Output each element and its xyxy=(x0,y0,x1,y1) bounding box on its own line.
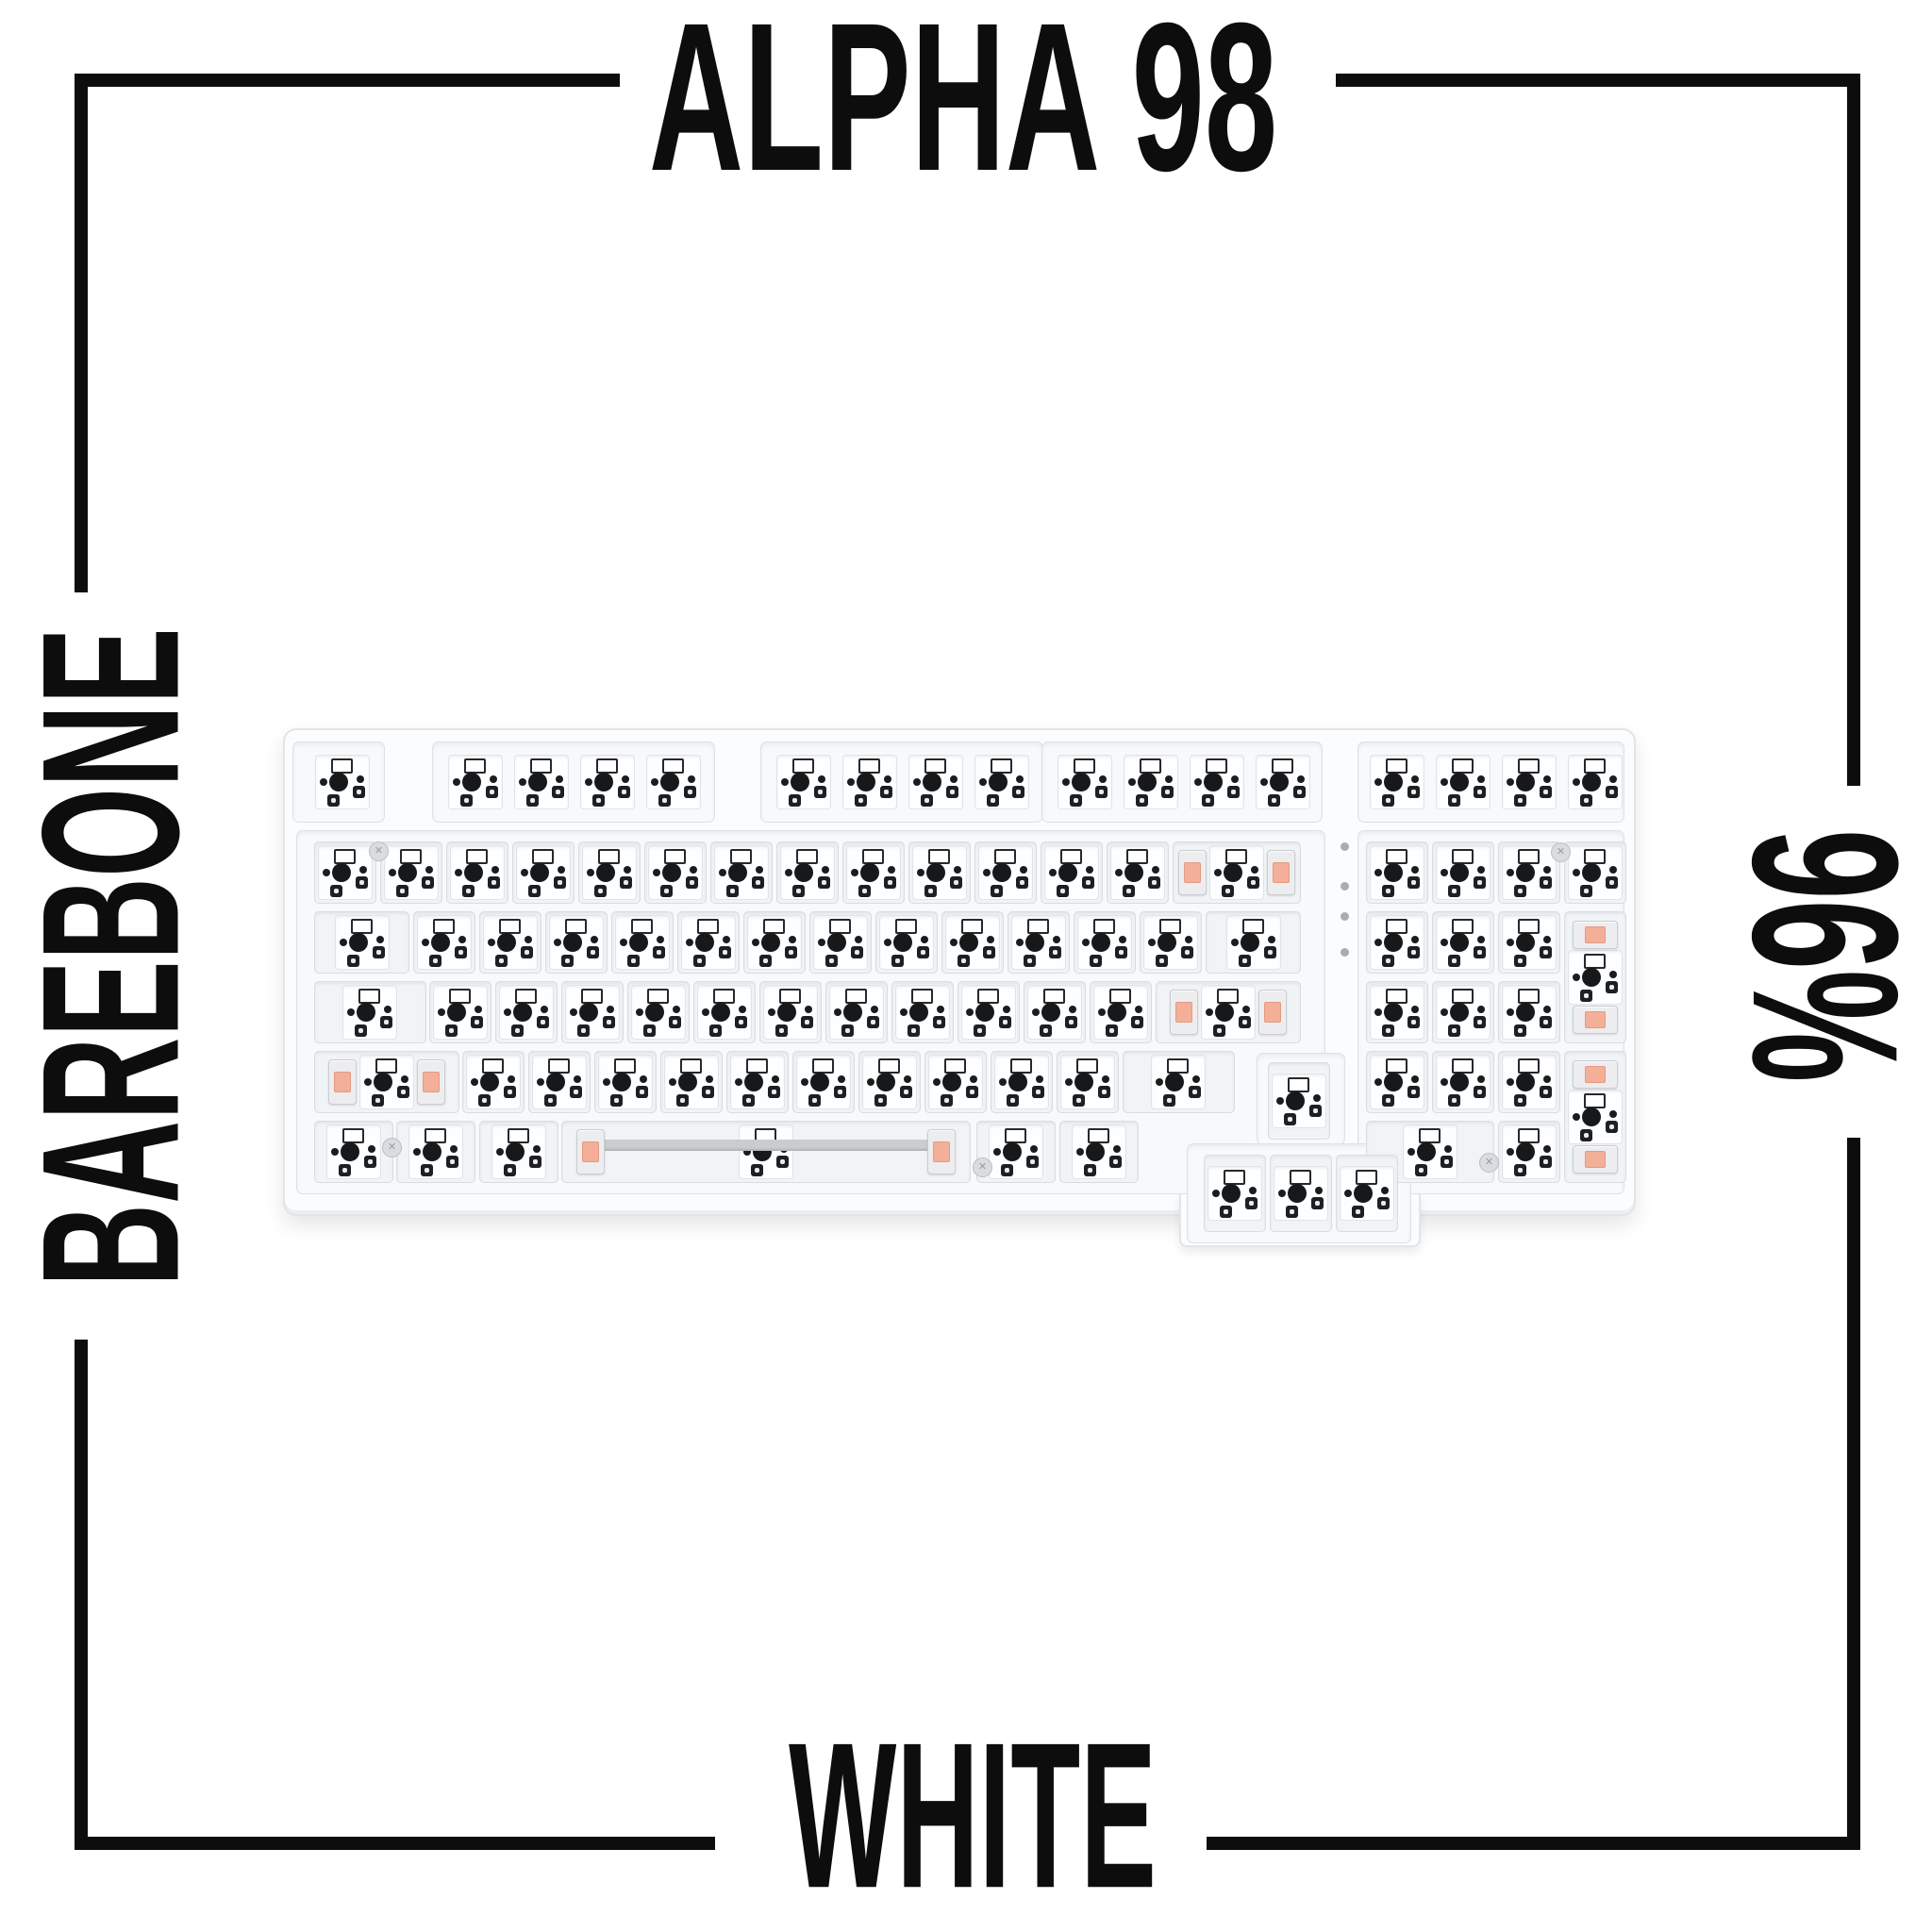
hotswap-socket xyxy=(813,915,868,970)
pin-hole-icon xyxy=(1194,778,1202,786)
switch-center-hole-icon xyxy=(1582,968,1601,987)
pin-hole-icon xyxy=(834,1008,841,1016)
hotswap-contact-icon xyxy=(1016,876,1028,889)
led-window-icon xyxy=(878,1058,900,1074)
hotswap-contact-icon xyxy=(917,946,929,958)
switch-center-hole-icon xyxy=(546,1073,565,1091)
hotswap-socket xyxy=(989,1124,1043,1179)
hotswap-socket xyxy=(516,845,571,900)
hotswap-socket xyxy=(1274,1166,1328,1221)
hotswap-socket xyxy=(1436,915,1491,970)
pin-hole-icon xyxy=(359,866,367,874)
pin-hole-icon xyxy=(570,1008,577,1016)
stab-damper xyxy=(423,1072,440,1092)
led-window-icon xyxy=(1452,989,1474,1004)
led-window-icon xyxy=(895,919,917,934)
pin-hole-icon xyxy=(993,1148,1001,1156)
pin-hole-icon xyxy=(587,869,594,876)
hotswap-socket xyxy=(1027,985,1082,1040)
hotswap-socket xyxy=(1436,1055,1491,1109)
led-window-icon xyxy=(515,989,537,1004)
pin-hole-icon xyxy=(1128,778,1136,786)
hotswap-contact-icon xyxy=(339,1164,351,1176)
switch-center-hole-icon xyxy=(1091,933,1110,952)
hotswap-contact-icon xyxy=(814,786,826,798)
hotswap-contact-icon xyxy=(933,1016,945,1028)
hotswap-contact-icon xyxy=(429,955,441,967)
hotswap-socket xyxy=(763,985,818,1040)
hotswap-contact-icon xyxy=(364,1156,376,1168)
switch-center-hole-icon xyxy=(1516,1142,1535,1161)
hotswap-contact-icon xyxy=(1057,885,1069,897)
hotswap-contact-icon xyxy=(950,876,962,889)
hotswap-contact-icon xyxy=(521,946,533,958)
pin-hole-icon xyxy=(888,866,895,874)
hotswap-contact-icon xyxy=(570,1086,582,1098)
pin-hole-icon xyxy=(1573,1113,1580,1121)
hotswap-contact-icon xyxy=(1311,1197,1324,1209)
pin-hole-icon xyxy=(735,1078,742,1086)
pin-hole-icon xyxy=(822,866,829,874)
pin-hole-icon xyxy=(607,1006,614,1013)
switch-center-hole-icon xyxy=(660,773,679,791)
pin-hole-icon xyxy=(558,866,565,874)
pin-hole-icon xyxy=(471,1078,478,1086)
indicator-led-dot xyxy=(1341,882,1349,891)
switch-center-hole-icon xyxy=(1384,773,1403,791)
stabilizer-housing xyxy=(1573,1060,1618,1089)
hotswap-contact-icon xyxy=(653,946,665,958)
switch-center-hole-icon xyxy=(480,1073,499,1091)
led-window-icon xyxy=(631,919,653,934)
hotswap-socket xyxy=(499,985,554,1040)
pin-hole-icon xyxy=(323,869,330,876)
stab-damper xyxy=(1585,1011,1606,1028)
pin-hole-icon xyxy=(1214,869,1222,876)
hotswap-contact-icon xyxy=(1606,1121,1618,1133)
led-window-icon xyxy=(862,849,884,864)
switch-center-hole-icon xyxy=(827,933,846,952)
pin-hole-icon xyxy=(389,869,396,876)
hotswap-contact-icon xyxy=(1073,1094,1085,1107)
product-title: ALPHA 98 xyxy=(649,0,1277,203)
led-window-icon xyxy=(1584,758,1606,774)
hotswap-contact-icon xyxy=(1070,794,1082,807)
led-window-icon xyxy=(565,919,587,934)
hotswap-contact-icon xyxy=(1580,885,1592,897)
hotswap-socket xyxy=(1568,845,1623,900)
pin-hole-icon xyxy=(1268,936,1275,943)
hotswap-contact-icon xyxy=(1352,1206,1364,1218)
switch-center-hole-icon xyxy=(909,1003,928,1022)
hotswap-contact-icon xyxy=(1540,1156,1552,1168)
switch-center-hole-icon xyxy=(857,773,875,791)
hotswap-socket xyxy=(483,915,538,970)
led-window-icon xyxy=(499,919,521,934)
hotswap-socket xyxy=(1340,1166,1394,1221)
led-window-icon xyxy=(779,989,801,1004)
hotswap-contact-icon xyxy=(372,1094,384,1107)
led-window-icon xyxy=(1126,849,1148,864)
hotswap-socket xyxy=(1190,755,1244,809)
spacebar-stabilizer-wire xyxy=(592,1140,941,1151)
stab-damper xyxy=(933,1141,950,1162)
switch-center-hole-icon xyxy=(728,863,747,882)
hotswap-contact-icon xyxy=(742,1094,755,1107)
switch-center-hole-icon xyxy=(926,863,945,882)
pin-hole-icon xyxy=(1374,778,1382,786)
led-window-icon xyxy=(425,1128,446,1143)
pin-hole-icon xyxy=(768,1008,775,1016)
hotswap-socket xyxy=(514,755,569,809)
pin-hole-icon xyxy=(1049,869,1057,876)
switch-center-hole-icon xyxy=(989,773,1008,791)
switch-center-hole-icon xyxy=(1008,1073,1027,1091)
led-window-icon xyxy=(1109,989,1131,1004)
pin-hole-icon xyxy=(673,1006,680,1013)
pin-hole-icon xyxy=(1374,1078,1382,1086)
hotswap-socket xyxy=(928,1055,983,1109)
led-window-icon xyxy=(994,849,1016,864)
hotswap-socket xyxy=(1436,755,1491,809)
switch-center-hole-icon xyxy=(1072,773,1091,791)
hotswap-contact-icon xyxy=(1382,885,1394,897)
hotswap-contact-icon xyxy=(552,786,564,798)
hotswap-contact-icon xyxy=(486,786,498,798)
hotswap-socket xyxy=(598,1055,653,1109)
hotswap-contact-icon xyxy=(471,1016,483,1028)
hotswap-socket xyxy=(1502,1055,1557,1109)
hotswap-contact-icon xyxy=(347,955,359,967)
pin-hole-icon xyxy=(690,866,697,874)
switch-center-hole-icon xyxy=(528,773,547,791)
pin-hole-icon xyxy=(651,778,658,786)
pin-hole-icon xyxy=(653,869,660,876)
pin-hole-icon xyxy=(521,869,528,876)
pin-hole-icon xyxy=(1543,775,1551,783)
switch-center-hole-icon xyxy=(662,863,681,882)
led-window-icon xyxy=(812,1058,834,1074)
led-window-icon xyxy=(1043,989,1065,1004)
hotswap-contact-icon xyxy=(327,794,340,807)
led-window-icon xyxy=(1386,1058,1407,1074)
hotswap-contact-icon xyxy=(1514,794,1526,807)
hotswap-contact-icon xyxy=(1407,786,1420,798)
led-window-icon xyxy=(532,849,554,864)
hotswap-socket xyxy=(448,755,503,809)
pin-hole-icon xyxy=(1152,866,1159,874)
led-window-icon xyxy=(730,849,752,864)
pin-hole-icon xyxy=(999,1078,1007,1086)
hotswap-contact-icon xyxy=(446,1156,458,1168)
hotswap-contact-icon xyxy=(1580,1129,1592,1141)
switch-center-hole-icon xyxy=(1450,1073,1469,1091)
led-window-icon xyxy=(911,989,933,1004)
hotswap-contact-icon xyxy=(752,876,764,889)
led-window-icon xyxy=(664,849,686,864)
hotswap-socket xyxy=(1011,915,1066,970)
pin-hole-icon xyxy=(987,936,994,943)
pin-hole-icon xyxy=(1411,936,1419,943)
pin-hole-icon xyxy=(1609,775,1617,783)
led-window-icon xyxy=(1452,849,1474,864)
hotswap-contact-icon xyxy=(592,794,605,807)
hotswap-contact-icon xyxy=(528,885,541,897)
layout-size-label: 96% xyxy=(1722,829,1929,1083)
pin-hole-icon xyxy=(455,869,462,876)
led-window-icon xyxy=(1224,1170,1245,1185)
pin-hole-icon xyxy=(496,1148,504,1156)
stab-damper xyxy=(1585,1151,1606,1168)
hotswap-socket xyxy=(697,985,752,1040)
hotswap-contact-icon xyxy=(478,1094,491,1107)
hotswap-socket xyxy=(961,985,1016,1040)
hotswap-socket xyxy=(1124,755,1178,809)
pin-hole-icon xyxy=(1441,1078,1448,1086)
plate-screw-icon: ✕ xyxy=(973,1158,992,1177)
hotswap-socket xyxy=(1502,915,1557,970)
hotswap-contact-icon xyxy=(1213,1024,1225,1037)
pin-hole-icon xyxy=(950,939,958,946)
indicator-led-dot xyxy=(1341,948,1349,957)
hotswap-socket xyxy=(879,915,934,970)
hotswap-socket xyxy=(565,985,620,1040)
pin-hole-icon xyxy=(537,1078,544,1086)
led-window-icon xyxy=(1217,989,1239,1004)
pin-hole-icon xyxy=(669,1078,676,1086)
switch-center-hole-icon xyxy=(1288,1184,1307,1203)
hotswap-socket xyxy=(384,845,439,900)
hotswap-contact-icon xyxy=(789,794,801,807)
product-image-canvas: ALPHA 98 BAREBONE 96% WHITE ✕✕✕✕✕ xyxy=(0,0,1932,1932)
pin-hole-icon xyxy=(1113,1145,1121,1153)
hotswap-contact-icon xyxy=(462,885,475,897)
led-window-icon xyxy=(1272,758,1293,774)
pin-hole-icon xyxy=(438,1008,445,1016)
hotswap-socket xyxy=(945,915,1000,970)
led-window-icon xyxy=(508,1128,529,1143)
hotswap-socket xyxy=(664,1055,719,1109)
pin-hole-icon xyxy=(1212,1190,1220,1197)
hotswap-socket xyxy=(1568,950,1623,1005)
hotswap-contact-icon xyxy=(900,1086,912,1098)
hotswap-contact-icon xyxy=(1540,876,1552,889)
hotswap-socket xyxy=(1436,845,1491,900)
hotswap-contact-icon xyxy=(554,876,566,889)
switch-center-hole-icon xyxy=(1354,1184,1373,1203)
hotswap-contact-icon xyxy=(1474,1086,1486,1098)
hotswap-contact-icon xyxy=(660,885,673,897)
hotswap-socket xyxy=(974,755,1029,809)
hotswap-contact-icon xyxy=(966,1086,978,1098)
led-window-icon xyxy=(924,758,946,774)
hotswap-socket xyxy=(615,915,670,970)
switch-center-hole-icon xyxy=(1417,1142,1436,1161)
led-window-icon xyxy=(1419,1128,1441,1143)
hotswap-contact-icon xyxy=(1407,1086,1420,1098)
pin-hole-icon xyxy=(805,1006,812,1013)
pin-hole-icon xyxy=(983,869,991,876)
hotswap-socket xyxy=(842,755,897,809)
led-window-icon xyxy=(1167,1058,1189,1074)
hotswap-contact-icon xyxy=(537,1016,549,1028)
led-window-icon xyxy=(1288,1077,1309,1092)
led-window-icon xyxy=(334,849,356,864)
pin-hole-icon xyxy=(491,866,499,874)
hotswap-contact-icon xyxy=(587,946,599,958)
switch-center-hole-icon xyxy=(1222,1184,1241,1203)
switch-center-hole-icon xyxy=(579,1003,598,1022)
hotswap-contact-icon xyxy=(785,946,797,958)
led-window-icon xyxy=(482,1058,504,1074)
led-window-icon xyxy=(464,758,486,774)
hotswap-contact-icon xyxy=(355,1024,367,1037)
indicator-led-dot xyxy=(1341,912,1349,921)
stab-damper xyxy=(582,1141,599,1162)
pin-hole-icon xyxy=(1573,778,1580,786)
hotswap-contact-icon xyxy=(1082,876,1094,889)
pin-hole-icon xyxy=(706,1075,713,1083)
switch-center-hole-icon xyxy=(341,1142,359,1161)
hotswap-socket xyxy=(780,845,835,900)
hotswap-contact-icon xyxy=(1026,1156,1039,1168)
led-window-icon xyxy=(1005,1128,1026,1143)
pin-hole-icon xyxy=(1148,939,1156,946)
hotswap-contact-icon xyxy=(867,1016,879,1028)
hotswap-contact-icon xyxy=(422,876,434,889)
pin-hole-icon xyxy=(1441,778,1448,786)
pin-hole-icon xyxy=(921,936,928,943)
hotswap-contact-icon xyxy=(526,794,539,807)
pin-hole-icon xyxy=(657,936,664,943)
stab-damper xyxy=(334,1072,351,1092)
hotswap-contact-icon xyxy=(1247,876,1259,889)
switch-center-hole-icon xyxy=(843,1003,862,1022)
hotswap-contact-icon xyxy=(1514,885,1526,897)
hotswap-socket xyxy=(747,915,802,970)
hotswap-contact-icon xyxy=(504,1086,516,1098)
hotswap-socket xyxy=(417,915,472,970)
hotswap-contact-icon xyxy=(504,1164,516,1176)
hotswap-contact-icon xyxy=(1309,1105,1322,1117)
hotswap-contact-icon xyxy=(495,955,508,967)
hotswap-contact-icon xyxy=(1001,1164,1013,1176)
pin-hole-icon xyxy=(376,936,384,943)
hotswap-contact-icon xyxy=(958,955,970,967)
frame-line xyxy=(1847,1138,1860,1850)
hotswap-socket xyxy=(1060,1055,1115,1109)
pin-hole-icon xyxy=(425,866,433,874)
pin-hole-icon xyxy=(838,1075,845,1083)
hotswap-socket xyxy=(408,1124,463,1179)
hotswap-socket xyxy=(532,1055,587,1109)
pin-hole-icon xyxy=(340,939,347,946)
led-window-icon xyxy=(1518,1058,1540,1074)
led-window-icon xyxy=(342,1128,364,1143)
switch-center-hole-icon xyxy=(860,863,879,882)
hotswap-contact-icon xyxy=(544,1094,557,1107)
hotswap-contact-icon xyxy=(353,786,365,798)
stabilizer-housing xyxy=(1573,1006,1618,1034)
pin-hole-icon xyxy=(1609,971,1617,978)
hotswap-socket xyxy=(1207,1166,1262,1221)
pin-hole-icon xyxy=(1381,1187,1389,1194)
switch-center-hole-icon xyxy=(1124,863,1143,882)
pin-hole-icon xyxy=(364,1078,372,1086)
stabilizer-housing xyxy=(1170,990,1198,1035)
hotswap-contact-icon xyxy=(1227,786,1240,798)
pin-hole-icon xyxy=(1119,936,1126,943)
pin-hole-icon xyxy=(525,936,532,943)
hotswap-contact-icon xyxy=(1148,876,1160,889)
led-window-icon xyxy=(858,758,880,774)
pin-hole-icon xyxy=(1185,936,1192,943)
hotswap-socket xyxy=(549,915,604,970)
switch-center-hole-icon xyxy=(1086,1142,1105,1161)
switch-center-hole-icon xyxy=(497,933,516,952)
hotswap-socket xyxy=(1093,985,1148,1040)
hotswap-socket xyxy=(359,1055,414,1109)
switch-center-hole-icon xyxy=(1003,1142,1022,1161)
hotswap-socket xyxy=(1370,755,1424,809)
led-window-icon xyxy=(977,989,999,1004)
led-window-icon xyxy=(351,919,373,934)
led-window-icon xyxy=(331,758,353,774)
hotswap-contact-icon xyxy=(1202,794,1214,807)
hotswap-contact-icon xyxy=(594,885,607,897)
stab-damper xyxy=(1175,1002,1192,1023)
hotswap-contact-icon xyxy=(855,794,867,807)
pin-hole-icon xyxy=(979,778,987,786)
pin-hole-icon xyxy=(488,939,495,946)
hotswap-contact-icon xyxy=(751,1164,763,1176)
hotswap-socket xyxy=(1072,1124,1126,1179)
hotswap-contact-icon xyxy=(1181,946,1193,958)
hotswap-contact-icon xyxy=(974,1024,986,1037)
hotswap-contact-icon xyxy=(1131,1016,1143,1028)
pin-hole-icon xyxy=(789,936,796,943)
hotswap-contact-icon xyxy=(658,794,671,807)
pin-hole-icon xyxy=(401,1075,408,1083)
switch-center-hole-icon xyxy=(761,933,780,952)
hotswap-contact-icon xyxy=(460,794,473,807)
switch-center-hole-icon xyxy=(1286,1091,1305,1110)
hotswap-contact-icon xyxy=(669,1016,681,1028)
stab-damper xyxy=(1585,1066,1606,1083)
indicator-led-dot xyxy=(1341,842,1349,851)
hotswap-contact-icon xyxy=(1407,876,1420,889)
pin-hole-icon xyxy=(756,866,763,874)
pin-hole-icon xyxy=(556,775,563,783)
hotswap-contact-icon xyxy=(801,1016,813,1028)
hotswap-contact-icon xyxy=(1514,955,1526,967)
pin-hole-icon xyxy=(1099,775,1107,783)
switch-center-hole-icon xyxy=(464,863,483,882)
pin-hole-icon xyxy=(1053,936,1060,943)
hotswap-socket xyxy=(342,985,397,1040)
pin-hole-icon xyxy=(622,775,629,783)
hotswap-contact-icon xyxy=(1109,1156,1122,1168)
pin-hole-icon xyxy=(1242,1006,1250,1013)
pin-hole-icon xyxy=(620,939,627,946)
hotswap-contact-icon xyxy=(1095,786,1108,798)
pin-hole-icon xyxy=(1297,775,1305,783)
hotswap-contact-icon xyxy=(709,1024,722,1037)
hotswap-contact-icon xyxy=(1448,1024,1460,1037)
hotswap-contact-icon xyxy=(1123,885,1135,897)
switch-center-hole-icon xyxy=(1204,773,1223,791)
hotswap-socket xyxy=(1502,985,1557,1040)
